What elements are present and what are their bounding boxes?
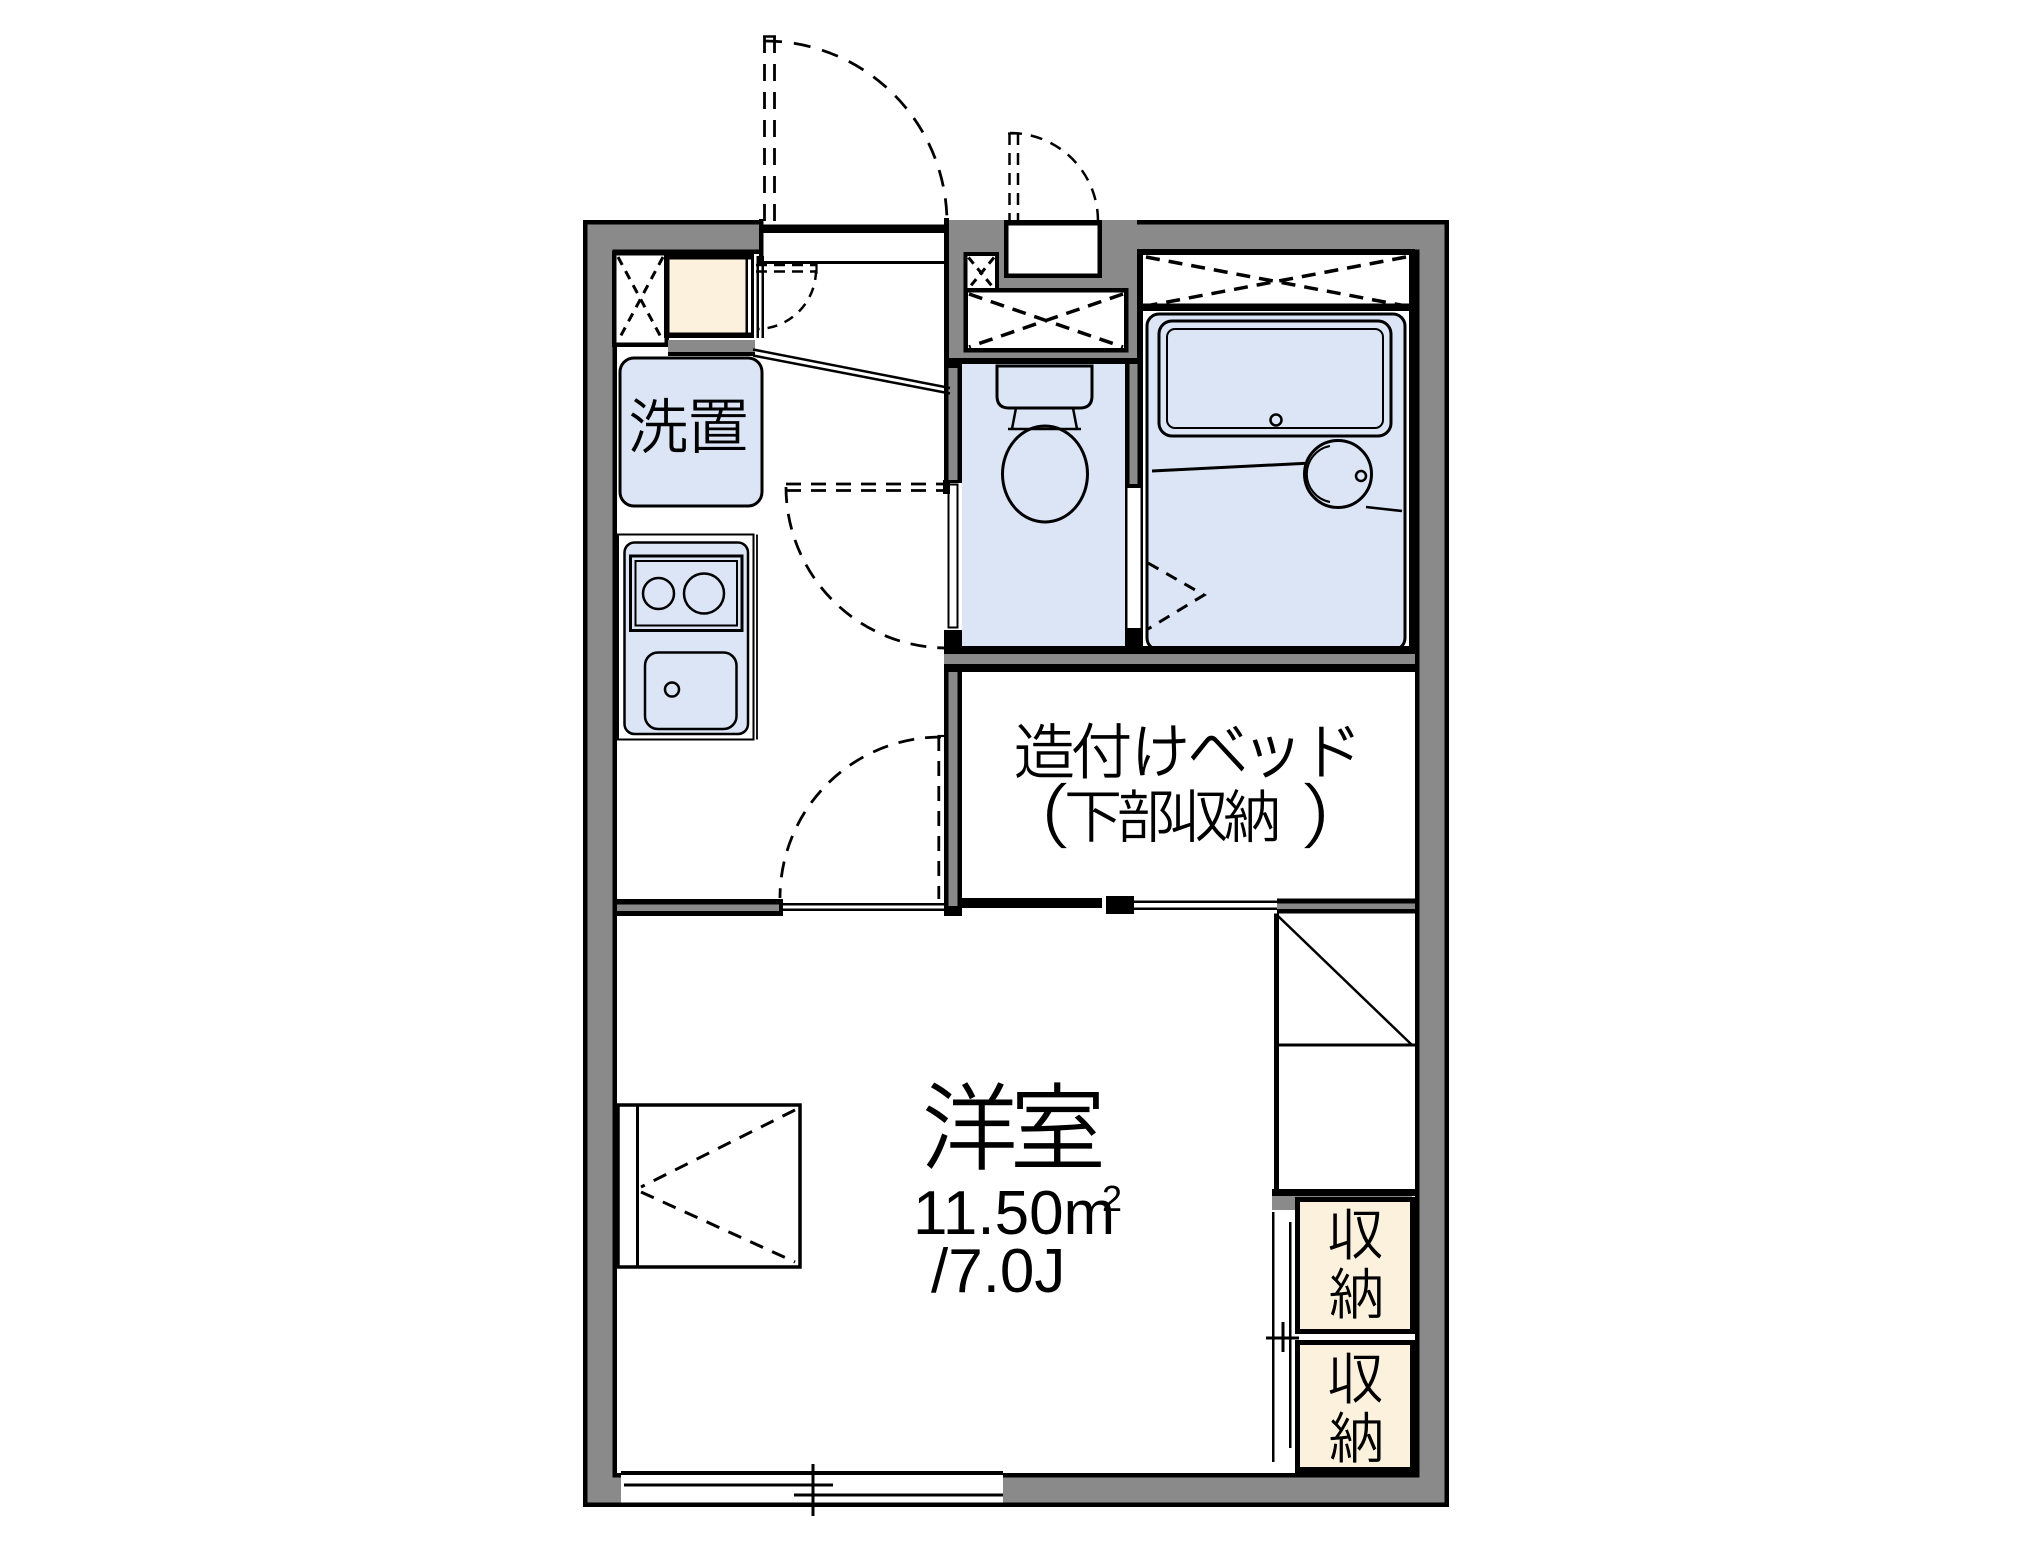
svg-text:/7.0J: /7.0J	[931, 1237, 1065, 1306]
svg-text:2: 2	[1102, 1178, 1122, 1219]
